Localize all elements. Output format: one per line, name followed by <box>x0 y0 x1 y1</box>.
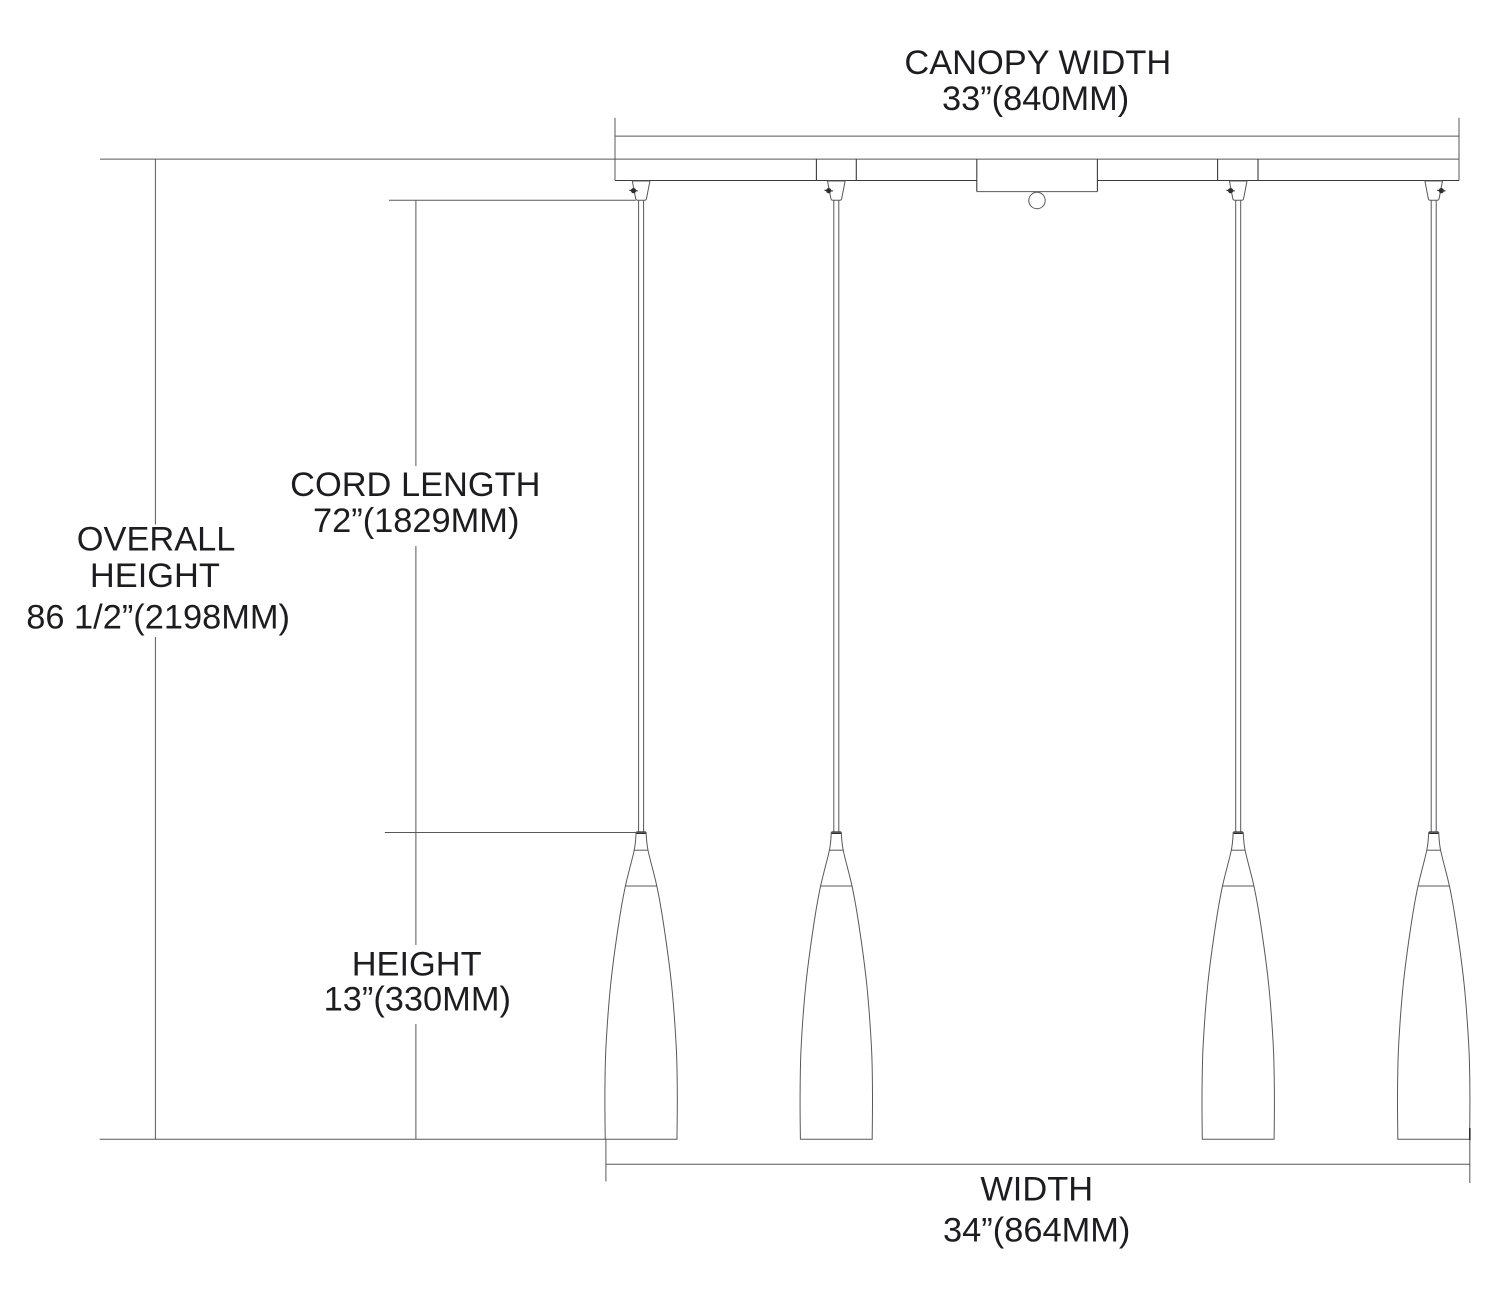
svg-text:33”(840MM): 33”(840MM) <box>942 80 1129 118</box>
svg-text:HEIGHT: HEIGHT <box>352 945 482 983</box>
svg-text:WIDTH: WIDTH <box>980 1171 1093 1209</box>
svg-text:CORD LENGTH: CORD LENGTH <box>290 466 540 504</box>
svg-text:72”(1829MM): 72”(1829MM) <box>313 502 519 540</box>
svg-text:CANOPY WIDTH: CANOPY WIDTH <box>904 44 1171 82</box>
svg-text:34”(864MM): 34”(864MM) <box>943 1212 1130 1250</box>
svg-text:86 1/2”(2198MM): 86 1/2”(2198MM) <box>26 599 290 637</box>
svg-text:OVERALL: OVERALL <box>77 521 236 559</box>
svg-text:13”(330MM): 13”(330MM) <box>324 980 511 1018</box>
svg-text:HEIGHT: HEIGHT <box>90 557 220 595</box>
